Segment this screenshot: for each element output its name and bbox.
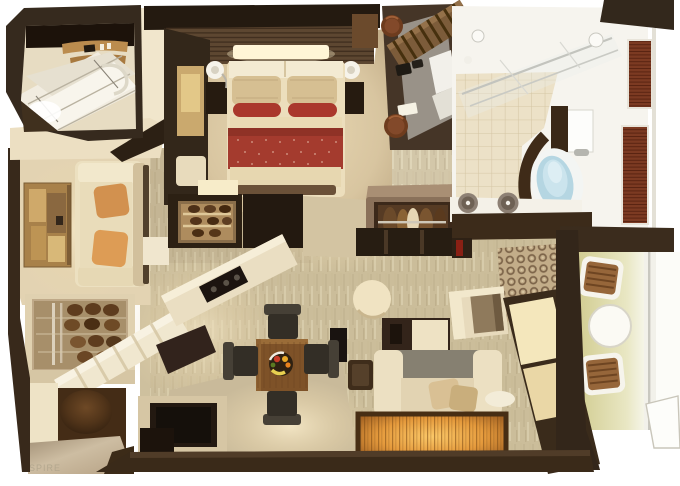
svg-text:SPIRE: SPIRE (29, 463, 61, 473)
